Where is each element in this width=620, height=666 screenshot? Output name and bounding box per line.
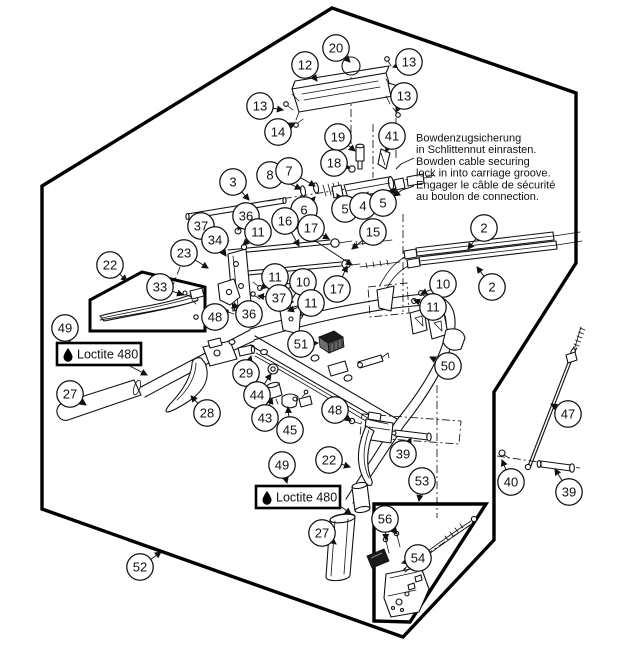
- callout-number: 33: [153, 280, 167, 295]
- callout-number: 3: [229, 175, 236, 190]
- callout-22: 22: [97, 252, 127, 281]
- callout-number: 19: [331, 130, 345, 145]
- callout-number: 39: [562, 485, 576, 500]
- callout-number: 29: [239, 366, 253, 381]
- callout-13: 13: [393, 49, 422, 75]
- callout-number: 4: [359, 199, 366, 214]
- loctite-label-text: Loctite 480: [77, 348, 138, 362]
- callout-49: 49: [269, 452, 295, 483]
- callout-leader: [242, 192, 249, 200]
- callout-7: 7: [276, 158, 315, 186]
- clip-41: [378, 149, 390, 169]
- screw-13-right: [393, 108, 400, 117]
- callout-number: 48: [328, 403, 342, 418]
- callout-leader: [502, 460, 506, 470]
- callout-leader: [151, 552, 161, 559]
- callout-number: 22: [322, 453, 336, 468]
- cable-adjuster: [349, 144, 390, 172]
- callout-leader: [342, 464, 350, 467]
- callout-number: 49: [275, 458, 289, 473]
- callout-number: 34: [208, 233, 222, 248]
- callout-34: 34: [202, 227, 228, 256]
- callout-leader: [322, 235, 329, 239]
- callout-number: 45: [283, 423, 297, 438]
- washer-8: [300, 185, 307, 196]
- callout-number: 11: [251, 225, 265, 240]
- callout-18: 18: [321, 150, 350, 176]
- callout-number: 56: [378, 512, 392, 527]
- callout-number: 51: [294, 337, 308, 352]
- nut-18: [349, 166, 355, 172]
- callout-number: 11: [304, 296, 318, 311]
- callout-14: 14: [265, 119, 295, 145]
- callout-number: 27: [315, 526, 329, 541]
- callout-33: 33: [147, 274, 183, 300]
- screw-14: [294, 119, 303, 127]
- callout-leader: [120, 274, 127, 281]
- callout-number: 17: [304, 221, 318, 236]
- callout-41: 41: [379, 123, 405, 152]
- callout-36: 36: [236, 301, 262, 327]
- callout-3: 3: [220, 169, 249, 200]
- callout-number: 13: [402, 55, 416, 70]
- note-text-block: Bowdenzugsicherungin Schlittennut einras…: [416, 133, 555, 204]
- callout-53: 53: [409, 468, 435, 501]
- inset-box-lever-detail: [90, 272, 205, 331]
- callout-12: 12: [292, 52, 318, 81]
- callout-number: 49: [58, 321, 72, 336]
- callout-47: 47: [551, 401, 581, 427]
- switch-51: [319, 331, 344, 353]
- callout-number: 41: [385, 129, 399, 144]
- callout-leader: [288, 407, 289, 417]
- callout-number: 53: [415, 474, 429, 489]
- callout-leader: [273, 108, 283, 110]
- callout-leader: [286, 478, 287, 483]
- callout-leader: [348, 145, 355, 151]
- callout-13: 13: [247, 93, 283, 119]
- note-line: Engager le câble de sécurité: [416, 179, 555, 191]
- frame-assembly: [229, 286, 465, 581]
- screw-13-left: [284, 102, 293, 110]
- callout-number: 39: [396, 447, 410, 462]
- callout-number: 8: [266, 168, 273, 183]
- washer-7: [313, 182, 320, 193]
- callout-39: 39: [555, 469, 582, 505]
- callout-number: 27: [63, 387, 77, 402]
- callout-leader: [222, 251, 226, 256]
- callout-17: 17: [298, 215, 329, 241]
- callout-52: 52: [127, 552, 161, 580]
- callout-leader: [300, 178, 315, 186]
- callout-number: 28: [200, 406, 214, 421]
- callout-number: 14: [271, 125, 285, 140]
- trigger-lever-detail: [100, 293, 198, 321]
- note-line: Bowdenzugsicherung: [416, 133, 521, 145]
- exploded-parts-diagram: Bowdenzugsicherungin Schlittennut einras…: [0, 0, 620, 666]
- callout-number: 11: [426, 300, 440, 315]
- callout-13: 13: [391, 83, 417, 112]
- note-line: au boulon de connection.: [416, 191, 539, 203]
- callout-number: 22: [103, 258, 117, 273]
- callout-leader: [258, 296, 266, 297]
- rod-47-assembly: [499, 327, 585, 472]
- callout-leader: [477, 267, 484, 276]
- callout-number: 36: [242, 307, 256, 322]
- callout-45: 45: [277, 407, 303, 443]
- callout-leader: [250, 356, 251, 360]
- callout-number: 10: [436, 277, 450, 292]
- callout-number: 43: [258, 411, 272, 426]
- callout-leader: [264, 374, 271, 384]
- callout-number: 16: [278, 214, 292, 229]
- callout-2: 2: [477, 267, 505, 300]
- callout-number: 47: [561, 407, 575, 422]
- callout-22: 22: [316, 447, 350, 473]
- callout-number: 37: [272, 291, 286, 306]
- callout-number: 5: [379, 196, 386, 211]
- callout-number: 44: [250, 388, 264, 403]
- callout-number: 15: [366, 225, 380, 240]
- callout-number: 2: [488, 280, 495, 295]
- callout-number: 23: [177, 246, 191, 261]
- callout-15: 15: [352, 219, 386, 249]
- callout-number: 7: [285, 164, 292, 179]
- loctite-label-text: Loctite 480: [276, 491, 337, 505]
- callout-number: 11: [268, 270, 282, 285]
- callout-number: 48: [208, 310, 222, 325]
- callout-37: 37: [258, 285, 292, 311]
- callout-number: 13: [253, 99, 267, 114]
- callout-number: 2: [480, 221, 487, 236]
- callout-28: 28: [191, 396, 220, 426]
- callout-number: 13: [397, 89, 411, 104]
- callout-leader: [430, 357, 436, 360]
- bolt-48: [349, 418, 354, 423]
- note-line: lock in into carriage groove.: [416, 168, 551, 180]
- cap-56: [367, 549, 389, 568]
- callout-number: 10: [296, 275, 310, 290]
- callout-48: 48: [202, 304, 228, 330]
- callout-number: 12: [298, 58, 312, 73]
- callout-number: 18: [327, 156, 341, 171]
- callout-number: 52: [133, 560, 147, 575]
- callout-number: 20: [329, 41, 343, 56]
- callout-leader: [419, 494, 420, 501]
- callout-number: 5: [341, 202, 348, 217]
- callout-50: 50: [430, 353, 461, 379]
- exploded-parts-diagram-page: Bowdenzugsicherungin Schlittennut einras…: [0, 0, 620, 666]
- callout-leader: [555, 469, 562, 481]
- callout-leader: [195, 260, 208, 268]
- callout-51: 51: [288, 331, 318, 357]
- callout-19: 19: [325, 124, 355, 151]
- callout-number: 40: [504, 475, 518, 490]
- cable-clamp-parts: [267, 364, 312, 408]
- callout-20: 20: [323, 35, 350, 62]
- callout-leader: [396, 108, 398, 112]
- callout-number: 54: [411, 551, 425, 566]
- pin-39-right: [541, 461, 571, 471]
- note-line: Bowden cable securing: [416, 156, 530, 168]
- loctite-label: Loctite 480: [256, 486, 340, 508]
- callout-40: 40: [498, 460, 524, 495]
- callout-number: 50: [441, 359, 455, 374]
- loctite-label: Loctite 480: [57, 343, 141, 365]
- screw-13-top: [385, 57, 391, 66]
- note-line: in Schlittennut einrasten.: [416, 144, 536, 156]
- callout-leader: [172, 291, 183, 295]
- callout-number: 17: [330, 282, 344, 297]
- callout-27: 27: [309, 520, 336, 546]
- callout-49: 49: [52, 315, 78, 342]
- callout-10: 10: [421, 271, 456, 297]
- pin-39: [395, 430, 428, 440]
- callout-17: 17: [324, 266, 350, 302]
